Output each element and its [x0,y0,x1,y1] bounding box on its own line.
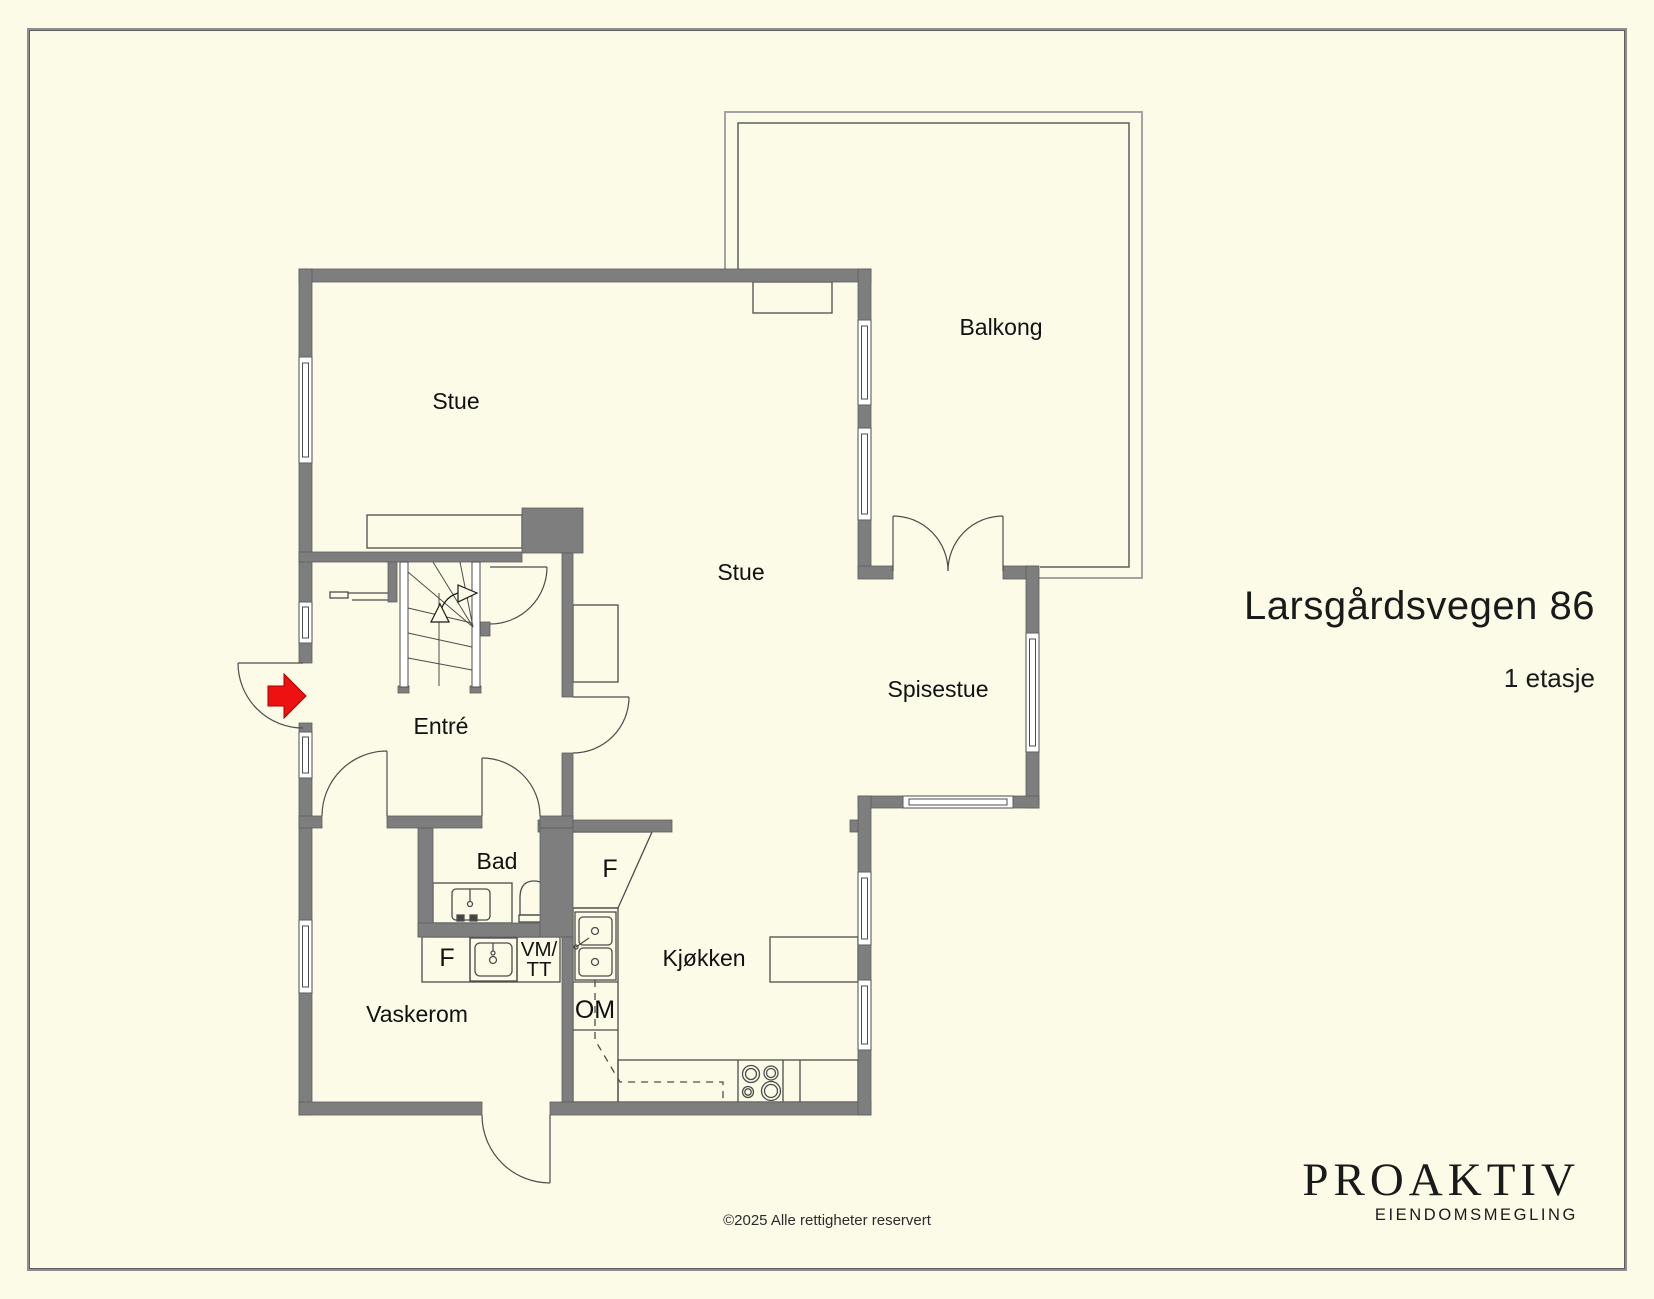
copyright-text: ©2025 Alle rettigheter reservert [723,1212,931,1229]
kitchen-sink-unit [575,912,616,980]
entre-stue-door [573,697,629,753]
brand-tagline: EIENDOMSMEGLING [1302,1206,1578,1225]
room-label-spisestue: Spisestue [887,676,988,702]
chimney [522,508,583,553]
fixture-label-washer-2: TT [526,958,552,981]
stair-treads [408,562,473,686]
stair-direction-arrow [431,585,477,622]
fixture-label-fridge-kitchen: F [602,855,617,883]
balcony-double-door [893,516,1003,571]
stove-burners [743,1066,781,1101]
brand-name: PROAKTIV [1302,1156,1580,1205]
wardrobe-outline [367,515,522,548]
balcony-railing [725,112,1142,578]
room-label-kjokken: Kjøkken [662,945,745,971]
brand-logo: PROAKTIV EIENDOMSMEGLING [1302,1156,1580,1225]
room-label-vaskerom: Vaskerom [366,1001,468,1027]
fixture-label-dishwasher: OM [575,996,615,1024]
doors [238,516,1003,1183]
page-title: Larsgårdsvegen 86 [1244,584,1595,629]
vaskerom-door [322,751,387,816]
room-label-entre: Entré [414,713,469,739]
staircase [400,562,480,687]
kitchen-peninsula [770,937,858,982]
back-door [482,1115,550,1183]
coat-shelf [330,592,348,598]
stair-door [490,567,547,624]
room-label-bad: Bad [477,848,518,874]
fixture-label-fridge-laundry: F [439,944,454,972]
floor-label: 1 etasje [1244,663,1595,694]
hearth-outline [753,282,832,313]
entrance-arrow-icon [268,674,306,718]
room-label-stue-center: Stue [717,559,764,585]
room-label-stue-upper: Stue [432,388,479,414]
bad-door [482,758,540,816]
title-block: Larsgårdsvegen 86 1 etasje [1244,584,1595,694]
closet-outline [573,605,618,682]
room-label-balkong: Balkong [959,314,1042,340]
